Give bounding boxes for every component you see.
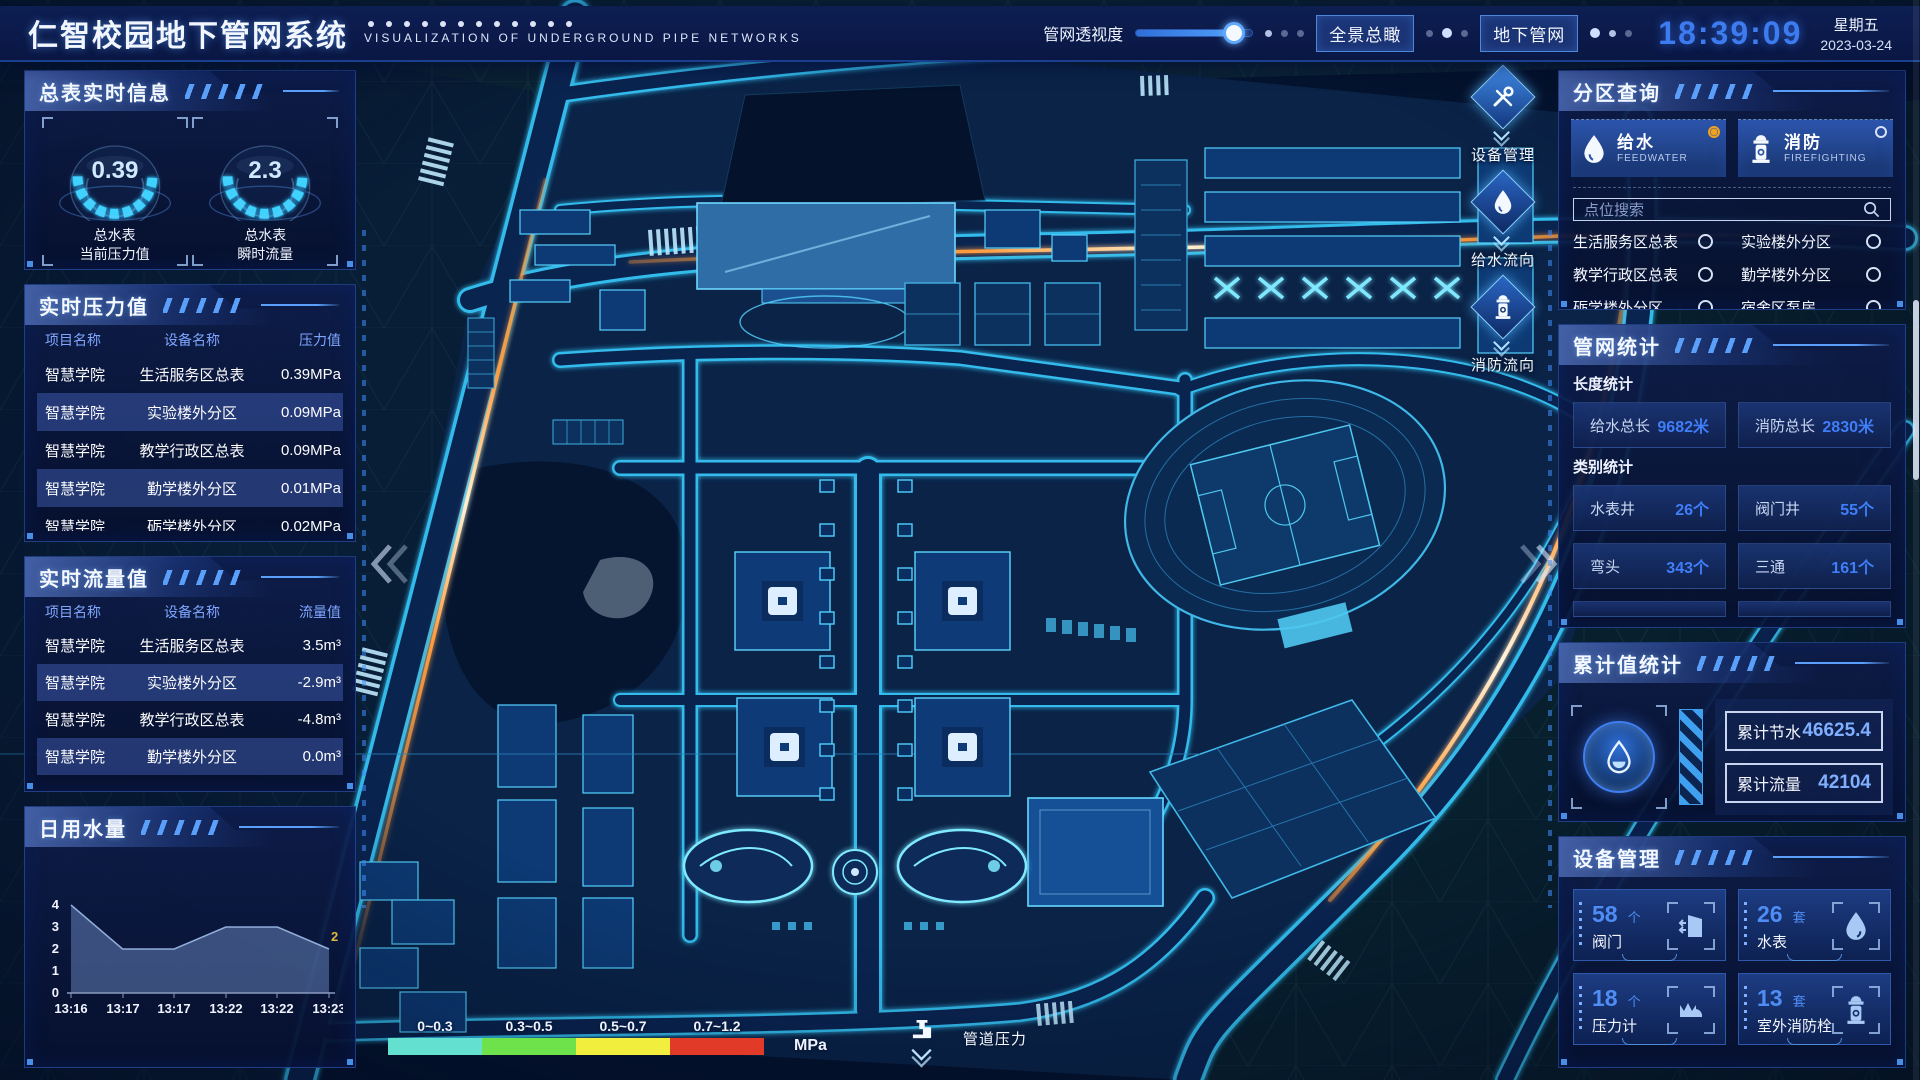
clock: 18:39:09 星期五 2023-03-24 [1658, 14, 1892, 53]
stat-chip-clipped [1738, 601, 1891, 617]
list-item[interactable]: 教学行政区总表 [1573, 264, 1723, 285]
svg-text:2: 2 [52, 941, 59, 956]
pan-right-button[interactable] [1516, 540, 1560, 593]
length-stats-label: 长度统计 [1573, 373, 1891, 394]
stat-chip: 阀门井55个 [1738, 485, 1891, 531]
category-stats-label: 类别统计 [1573, 456, 1891, 477]
toolbar-device-management[interactable]: 设备管理 [1471, 66, 1535, 165]
stat-chip-clipped [1573, 601, 1726, 617]
svg-text:4: 4 [52, 897, 60, 912]
app-title: 仁智校园地下管网系统 [28, 11, 348, 55]
left-panel: 总表实时信息 0.39 总水表 当前压力值 [24, 70, 356, 1068]
svg-text:13:16: 13:16 [54, 1001, 87, 1016]
svg-text:0: 0 [52, 985, 59, 1000]
gauge-value: 0.39 [91, 157, 138, 184]
double-chevron-right-icon [1516, 540, 1560, 588]
item-radio[interactable] [1698, 234, 1713, 249]
overview-button[interactable]: 全景总瞰 [1316, 15, 1414, 52]
section-title: 实时流量值 [39, 563, 149, 592]
pressure-table: 智慧学院生活服务区总表0.39MPa 智慧学院实验楼外分区0.09MPa 智慧学… [37, 355, 343, 531]
water-saving-icon-box [1571, 705, 1667, 809]
water-drop-icon [1583, 721, 1655, 793]
stat-chip: 水表井26个 [1573, 485, 1726, 531]
svg-text:2: 2 [331, 929, 338, 944]
toolbar-feedwater-flow[interactable]: 给水流向 [1471, 171, 1535, 270]
diamond-marker[interactable] [1470, 64, 1535, 129]
table-row: 智慧学院教学行政区总表-4.8m³ [37, 701, 343, 738]
legend-range: 0.3~0.5 [482, 1018, 576, 1034]
flow-table: 智慧学院生活服务区总表3.5m³ 智慧学院实验楼外分区-2.9m³ 智慧学院教学… [37, 627, 343, 781]
transparency-label: 管网透视度 [1043, 21, 1123, 45]
list-item[interactable]: 实验楼外分区 [1741, 231, 1891, 252]
item-radio[interactable] [1698, 267, 1713, 282]
transparency-slider[interactable] [1135, 29, 1253, 37]
device-card-valves[interactable]: 58个 阀门 [1573, 889, 1726, 961]
zone-point-list: 生活服务区总表 实验楼外分区 教学行政区总表 勤学楼外分区 砺学楼外分区 宿舍区… [1571, 231, 1893, 310]
section-master-meter-info: 总表实时信息 0.39 总水表 当前压力值 [24, 70, 356, 270]
list-item[interactable]: 宿舍区泵房 [1741, 297, 1891, 310]
section-cumulative-stats: 累计值统计 累计节水 46625.4 累计流量 4 [1558, 642, 1906, 822]
feedwater-label: 给水 [1617, 133, 1688, 153]
stat-chip: 弯头343个 [1573, 543, 1726, 589]
device-card-pressure-gauges[interactable]: 18个 压力计 [1573, 973, 1726, 1045]
svg-text:13:22: 13:22 [209, 1001, 242, 1016]
svg-text:13:23: 13:23 [312, 1001, 343, 1016]
section-device-management: 设备管理 58个 阀门 26套 水表 [1558, 836, 1906, 1068]
section-title: 实时压力值 [39, 291, 149, 320]
table-row: 智慧学院教学行政区总表0.09MPa [37, 431, 343, 469]
map-toolbar: 设备管理 给水流向 消防流向 [1464, 66, 1542, 375]
legend-range: 0.7~1.2 [670, 1018, 764, 1034]
title-decoration: VISUALIZATION OF UNDERGROUND PIPE NETWOR… [364, 21, 802, 45]
cumulative-flow: 累计流量 42104 [1725, 763, 1883, 803]
stat-chip: 消防总长2830米 [1738, 402, 1891, 448]
svg-text:3: 3 [52, 919, 59, 934]
legend-unit: MPa [794, 1037, 827, 1055]
table-row: 智慧学院生活服务区总表3.5m³ [37, 627, 343, 664]
diamond-marker[interactable] [1470, 274, 1535, 339]
list-item[interactable]: 勤学楼外分区 [1741, 264, 1891, 285]
pressure-legend: 0~0.3 0.3~0.5 0.5~0.7 0.7~1.2 MPa 管道压力 [388, 1018, 1027, 1055]
scrollbar-thumb[interactable] [1913, 300, 1919, 480]
firefighting-label: 消防 [1784, 133, 1867, 153]
water-drop-icon [1492, 189, 1514, 215]
table-row: 智慧学院实验楼外分区0.09MPa [37, 393, 343, 431]
right-panel: 分区查询 给水 FEEDWATER [1558, 70, 1906, 1068]
item-radio[interactable] [1698, 300, 1713, 310]
gauge-label-line1: 总水表 [42, 226, 188, 245]
gauge-flow: 2.3 总水表 瞬时流量 [192, 117, 338, 266]
point-search-input[interactable]: 点位搜索 [1573, 198, 1891, 221]
top-header-bar: 仁智校园地下管网系统 VISUALIZATION OF UNDERGROUND … [0, 6, 1920, 62]
clock-date: 2023-03-24 [1820, 37, 1892, 53]
stat-chip: 给水总长9682米 [1573, 402, 1726, 448]
gauge-dial: 2.3 [192, 121, 338, 221]
underground-pipes-button[interactable]: 地下管网 [1480, 15, 1578, 52]
cumulative-water-saved: 累计节水 46625.4 [1725, 711, 1883, 751]
feedwater-sublabel: FEEDWATER [1617, 153, 1688, 165]
page-scrollbar[interactable] [1913, 0, 1919, 1080]
device-card-water-meters[interactable]: 26套 水表 [1738, 889, 1891, 961]
item-radio[interactable] [1866, 267, 1881, 282]
slider-knob[interactable] [1223, 22, 1245, 44]
title-dots [364, 21, 802, 27]
search-icon [1863, 201, 1880, 218]
double-chevron-left-icon [368, 540, 412, 588]
section-daily-water-usage: 日用水量 0 1 2 3 4 13:16 13:17 13:17 13:22 1… [24, 806, 356, 1068]
item-radio[interactable] [1866, 300, 1881, 310]
gauge-dial: 0.39 [42, 121, 188, 221]
diamond-marker[interactable] [1470, 169, 1535, 234]
section-zone-query: 分区查询 给水 FEEDWATER [1558, 70, 1906, 310]
section-title: 管网统计 [1573, 331, 1661, 360]
firefighting-toggle-button[interactable]: 消防 FIREFIGHTING [1738, 119, 1893, 177]
clock-weekday: 星期五 [1834, 14, 1879, 35]
app-subtitle: VISUALIZATION OF UNDERGROUND PIPE NETWOR… [364, 31, 802, 45]
list-item[interactable]: 生活服务区总表 [1573, 231, 1723, 252]
toolbar-fire-flow[interactable]: 消防流向 [1471, 276, 1535, 375]
table-row: 智慧学院砺学楼外分区2.2m³ [37, 775, 343, 781]
fire-hydrant-icon [1748, 134, 1774, 164]
svg-text:13:22: 13:22 [260, 1001, 293, 1016]
table-header: 项目名称设备名称流量值 [37, 597, 343, 627]
section-title: 设备管理 [1573, 843, 1661, 872]
section-pipe-statistics: 管网统计 长度统计 给水总长9682米 消防总长2830米 类别统计 水表井26… [1558, 324, 1906, 628]
svg-text:13:17: 13:17 [157, 1001, 190, 1016]
slider-fill [1136, 30, 1231, 36]
table-row: 智慧学院勤学楼外分区0.0m³ [37, 738, 343, 775]
water-drop-icon [1581, 134, 1607, 164]
section-title: 累计值统计 [1573, 649, 1683, 678]
table-row: 智慧学院砺学楼外分区0.02MPa [37, 507, 343, 531]
feedwater-toggle-button[interactable]: 给水 FEEDWATER [1571, 119, 1726, 177]
pipe-transparency-control: 管网透视度 [1043, 21, 1253, 45]
search-placeholder: 点位搜索 [1584, 199, 1644, 220]
pipe-pressure-toggle[interactable] [907, 1020, 937, 1055]
section-title: 总表实时信息 [39, 77, 171, 106]
separator-dots [1426, 28, 1468, 38]
legend-range: 0~0.3 [388, 1018, 482, 1034]
pressure-gauge-icon [1676, 995, 1706, 1025]
section-realtime-pressure: 实时压力值 项目名称设备名称压力值 智慧学院生活服务区总表0.39MPa 智慧学… [24, 284, 356, 542]
section-realtime-flow: 实时流量值 项目名称设备名称流量值 智慧学院生活服务区总表3.5m³ 智慧学院实… [24, 556, 356, 792]
feedwater-radio[interactable] [1708, 126, 1720, 138]
list-item[interactable]: 砺学楼外分区 [1573, 297, 1723, 310]
svg-text:13:17: 13:17 [106, 1001, 139, 1016]
gauge-label-line2: 当前压力值 [42, 245, 188, 264]
valve-icon [1676, 911, 1706, 941]
section-title: 日用水量 [39, 813, 127, 842]
svg-text:1: 1 [52, 963, 59, 978]
hatch-decoration [1679, 709, 1703, 805]
chevron-down-icon [1490, 124, 1516, 134]
table-row: 智慧学院生活服务区总表0.39MPa [37, 355, 343, 393]
stat-chip: 三通161个 [1738, 543, 1891, 589]
section-title: 分区查询 [1573, 77, 1661, 106]
pan-left-button[interactable] [368, 540, 412, 593]
table-row: 智慧学院勤学楼外分区0.01MPa [37, 469, 343, 507]
chevron-down-icon [907, 1041, 937, 1055]
gauge-value: 2.3 [249, 157, 283, 184]
device-card-outdoor-hydrants[interactable]: 13套 室外消防栓 [1738, 973, 1891, 1045]
gauge-label-line2: 瞬时流量 [192, 245, 338, 264]
legend-range: 0.5~0.7 [576, 1018, 670, 1034]
legend-label: 管道压力 [963, 1028, 1027, 1049]
chevron-down-icon [1490, 229, 1516, 239]
water-meter-icon [1843, 911, 1869, 941]
item-radio[interactable] [1866, 234, 1881, 249]
wrench-tools-icon [1491, 85, 1515, 109]
hydrant-icon [1843, 995, 1869, 1025]
gauge-label-line1: 总水表 [192, 226, 338, 245]
fire-hydrant-icon [1492, 294, 1514, 320]
daily-water-chart: 0 1 2 3 4 13:16 13:17 13:17 13:22 13:22 … [37, 847, 343, 1057]
table-header: 项目名称设备名称压力值 [37, 325, 343, 355]
firefighting-sublabel: FIREFIGHTING [1784, 153, 1867, 165]
chevron-down-icon [1490, 334, 1516, 344]
pressure-meter-icon [911, 1020, 933, 1040]
section-header: 总表实时信息 [25, 71, 355, 111]
gauge-pressure: 0.39 总水表 当前压力值 [42, 117, 188, 266]
table-row: 智慧学院实验楼外分区-2.9m³ [37, 664, 343, 701]
clock-time: 18:39:09 [1658, 15, 1802, 52]
separator-dots [1590, 28, 1632, 38]
firefighting-radio[interactable] [1875, 126, 1887, 138]
legend-color-bar [388, 1038, 764, 1055]
slashes-decoration [185, 84, 269, 99]
separator-dots [1265, 30, 1304, 37]
